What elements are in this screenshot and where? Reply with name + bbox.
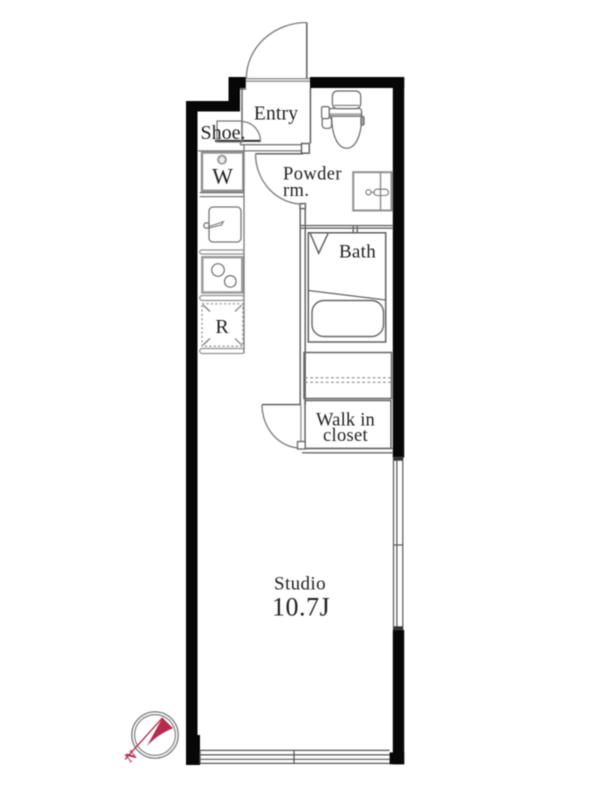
svg-text:Shoe.: Shoe. <box>201 122 246 144</box>
svg-text:Studio: Studio <box>274 574 326 595</box>
svg-text:Bath: Bath <box>339 242 376 263</box>
svg-text:W: W <box>212 163 233 188</box>
svg-text:R: R <box>215 316 229 338</box>
svg-text:10.7J: 10.7J <box>272 592 330 621</box>
svg-text:closet: closet <box>323 426 369 446</box>
svg-text:rm.: rm. <box>283 181 309 201</box>
svg-text:Entry: Entry <box>254 103 298 124</box>
